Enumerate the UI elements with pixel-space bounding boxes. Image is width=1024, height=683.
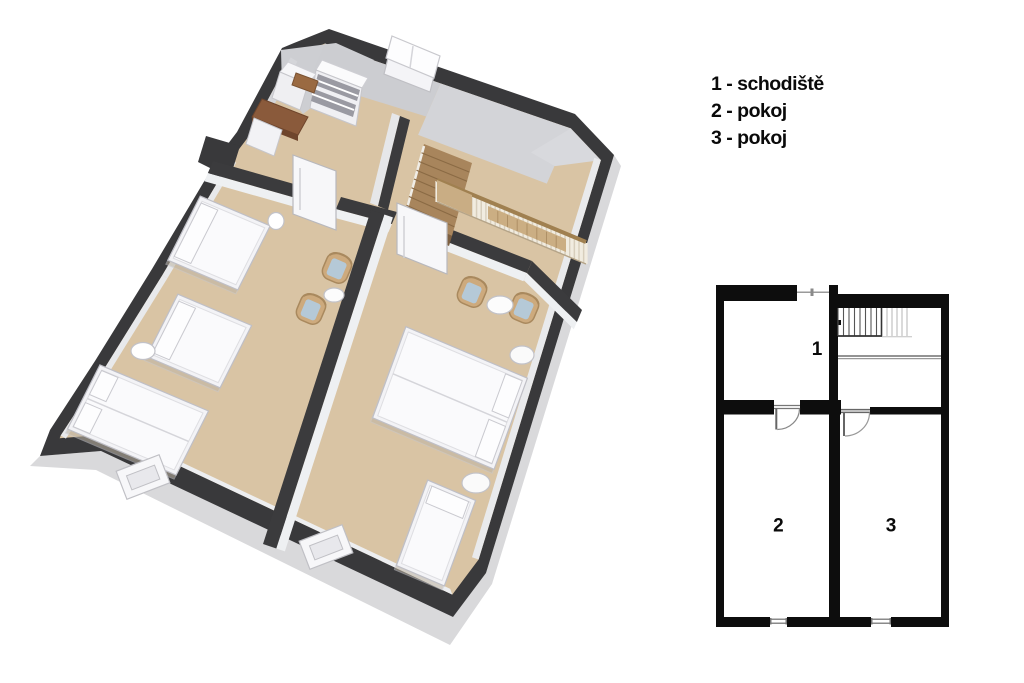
svg-text:1: 1 xyxy=(812,339,823,360)
svg-text:2: 2 xyxy=(773,516,784,537)
svg-text:3: 3 xyxy=(886,516,897,537)
